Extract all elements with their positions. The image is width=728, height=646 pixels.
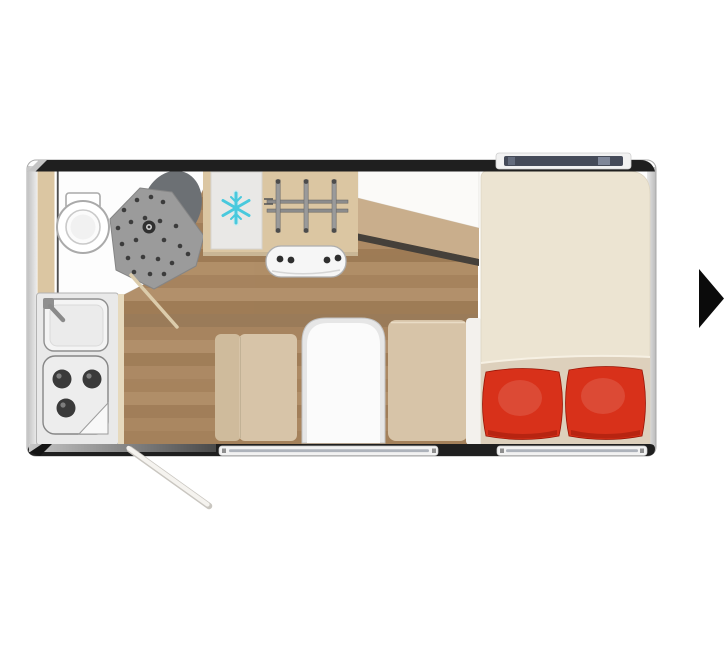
sink-with-faucet [43,298,108,351]
three-burner-hob [43,356,108,434]
pillow-right [566,367,646,440]
roof-window-top [496,153,631,169]
side-window-right [497,446,647,456]
bed-side-trim [466,318,482,445]
next-arrow-icon[interactable] [699,269,724,328]
shower-drain-dot [148,226,151,229]
counter-edge-trim [118,294,124,445]
stove-front-panel [266,246,346,277]
bench-seat-left [239,334,297,441]
pillow-left [483,369,563,440]
bottom-frame-band [28,444,655,456]
bedroom [466,171,650,446]
dinette [215,318,468,443]
bench-seat-right [388,320,468,441]
left-cabinet [38,171,55,295]
toilet-bowl [71,215,96,240]
page-background [0,0,728,646]
side-window-left [219,446,438,456]
left-wall [28,166,38,450]
caravan-floorplan [27,153,656,506]
entry-door-open [129,448,210,506]
kitchen-counter-unit [37,293,125,445]
bench-seat-left-backrest [215,334,241,441]
gas-grate [267,179,348,233]
dinette-table [307,323,380,443]
